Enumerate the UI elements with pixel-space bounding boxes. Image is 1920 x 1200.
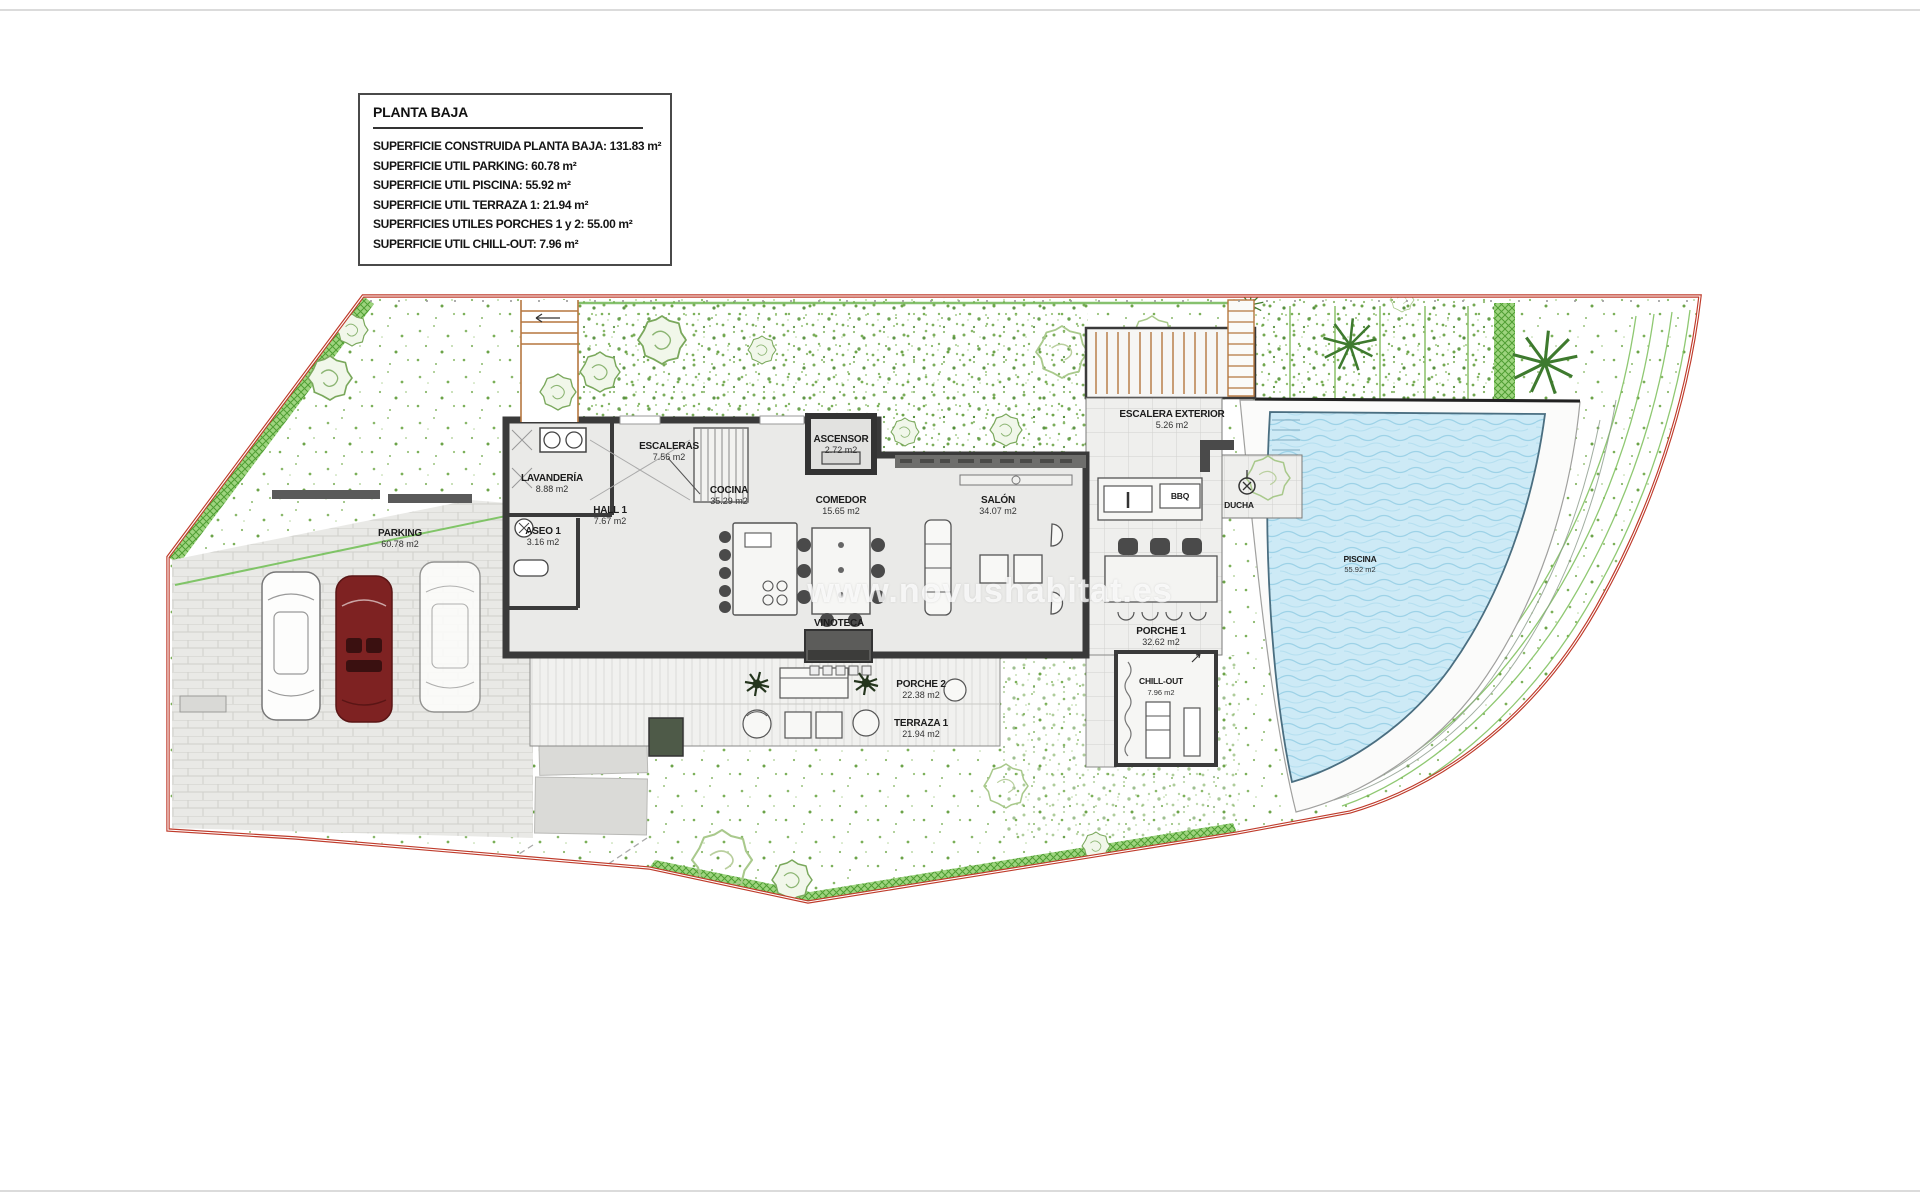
room-area-escaleras: 7.56 m2 — [653, 452, 686, 462]
deck-zone — [530, 658, 1000, 756]
room-area-piscina: 55.92 m2 — [1344, 565, 1375, 574]
planter-box — [649, 718, 683, 756]
entrance-path — [521, 300, 578, 422]
legend-line-parking: SUPERFICIE UTIL PARKING: 60.78 m² — [373, 157, 670, 177]
house — [506, 416, 1086, 675]
room-label-parking: PARKING — [378, 528, 422, 539]
room-label-lavanderia: LAVANDERÍA — [521, 471, 583, 484]
room-label-cocina: COCINA — [710, 485, 748, 496]
room-area-terraza1: 21.94 m2 — [902, 729, 940, 739]
room-label-piscina: PISCINA — [1343, 554, 1376, 564]
hedge-pool-side — [1494, 303, 1515, 401]
car-2-maroon — [336, 576, 392, 722]
room-area-comedor: 15.65 m2 — [822, 506, 860, 516]
floor-plan-canvas: ESCALERAS 7.56 m2 LAVANDERÍA 8.88 m2 ASE… — [0, 0, 1920, 1200]
room-label-salon: SALÓN — [981, 493, 1015, 506]
room-label-chillout: CHILL-OUT — [1139, 676, 1184, 686]
room-label-porche1: PORCHE 1 — [1136, 626, 1186, 637]
room-label-aseo1: ASEO 1 — [525, 526, 561, 537]
room-label-escalera-exterior: ESCALERA EXTERIOR — [1119, 409, 1225, 420]
legend-line-chillout: SUPERFICIE UTIL CHILL-OUT: 7.96 m² — [373, 235, 670, 255]
room-label-escaleras: ESCALERAS — [639, 441, 699, 452]
room-area-aseo1: 3.16 m2 — [527, 537, 560, 547]
room-label-bbq: BBQ — [1171, 491, 1190, 501]
room-label-porche2: PORCHE 2 — [896, 679, 946, 690]
room-area-porche1: 32.62 m2 — [1142, 637, 1180, 647]
legend-line-piscina: SUPERFICIE UTIL PISCINA: 55.92 m² — [373, 176, 670, 196]
lounge-chair — [743, 710, 771, 738]
room-label-ascensor: ASCENSOR — [813, 434, 869, 445]
legend-title: PLANTA BAJA — [373, 104, 643, 129]
room-label-hall1: HALL 1 — [593, 505, 627, 516]
legend-line-constructed: SUPERFICIE CONSTRUIDA PLANTA BAJA: 131.8… — [373, 137, 670, 157]
porche1-floor — [1086, 398, 1222, 655]
room-area-lavanderia: 8.88 m2 — [536, 484, 569, 494]
room-area-porche2: 22.38 m2 — [902, 690, 940, 700]
room-area-salon: 34.07 m2 — [979, 506, 1017, 516]
room-label-vinoteca: VINOTECA — [814, 618, 864, 629]
room-label-comedor: COMEDOR — [816, 495, 868, 506]
room-label-ducha: DUCHA — [1224, 500, 1254, 510]
room-area-hall1: 7.67 m2 — [594, 516, 627, 526]
room-area-escalera-exterior: 5.26 m2 — [1156, 420, 1189, 430]
plan-page: ESCALERAS 7.56 m2 LAVANDERÍA 8.88 m2 ASE… — [0, 0, 1920, 1200]
legend-box: PLANTA BAJA SUPERFICIE CONSTRUIDA PLANTA… — [358, 93, 672, 266]
car-3 — [420, 562, 480, 712]
room-area-ascensor: 2.72 m2 — [825, 445, 858, 455]
legend-line-porches: SUPERFICIES UTILES PORCHES 1 y 2: 55.00 … — [373, 215, 670, 235]
car-1 — [262, 572, 320, 720]
retaining-wall — [272, 490, 380, 499]
legend-line-terraza: SUPERFICIE UTIL TERRAZA 1: 21.94 m² — [373, 196, 670, 216]
room-area-cocina: 35.29 m2 — [710, 496, 748, 506]
vinoteca-unit — [805, 630, 872, 675]
parking-cars — [262, 562, 480, 722]
room-area-parking: 60.78 m2 — [381, 539, 419, 549]
room-area-chillout: 7.96 m2 — [1147, 688, 1174, 697]
chillout-zone — [1086, 652, 1216, 767]
room-label-terraza1: TERRAZA 1 — [894, 718, 949, 729]
